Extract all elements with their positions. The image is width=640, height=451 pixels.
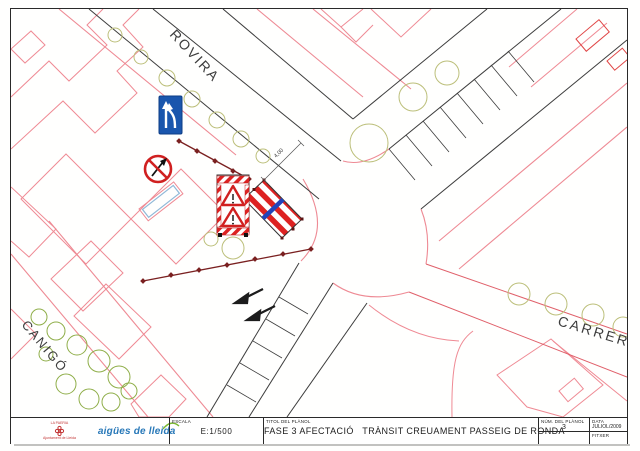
buildings-layer: [11, 9, 627, 417]
aigues-logo: aigües de lleida: [98, 426, 176, 437]
striped-barrier-icon: 4,00: [243, 140, 305, 240]
title-block: LA PAERIA Ajuntament de Lleida aigües de…: [11, 417, 627, 444]
carrer-lines: [409, 264, 627, 377]
logos-cell: LA PAERIA Ajuntament de Lleida aigües de…: [11, 418, 169, 444]
lane-merge-sign-icon: [159, 96, 182, 134]
titol-value: FASE 3 AFECTACIÓ TRÀNSIT CREUAMENT PASSE…: [264, 426, 538, 436]
paeria-logo: LA PAERIA Ajuntament de Lleida: [43, 422, 76, 441]
warning-triangles-panel-icon: [217, 175, 249, 237]
fitxer-subcell: FITXER: [590, 431, 627, 444]
dimension-label: 4,00: [273, 148, 285, 160]
num-value: 3: [539, 424, 589, 431]
street-label-carrer: CARRER: [556, 313, 627, 350]
data-value: JULIOL/2009: [592, 424, 621, 430]
traffic-direction-arrows-icon: [235, 289, 275, 320]
escala-label: ESCALA: [172, 419, 191, 424]
sheet-shadow: [14, 444, 630, 446]
curbs-layer: [11, 9, 627, 417]
trees-layer: [108, 28, 627, 337]
escala-cell: ESCALA E:1/500: [169, 418, 263, 444]
num-empty-subcell: [539, 431, 589, 444]
street-labels: ROVIRA CANIGÓ CARRER: [19, 26, 627, 375]
fitxer-label: FITXER: [592, 433, 609, 438]
num-planol-cell: NÚM. DEL PLÀNOL 3: [538, 418, 589, 444]
drawing-sheet: 4,00: [0, 0, 640, 451]
map-canvas: 4,00: [11, 9, 627, 417]
sheet-frame: 4,00: [10, 8, 628, 444]
titol-label: TITOL DEL PLÀNOL: [266, 419, 311, 424]
escala-value: E:1/500: [170, 427, 263, 436]
no-entry-sign-icon: [145, 156, 171, 182]
work-zone-outline: [139, 182, 183, 221]
titol-cell: TITOL DEL PLÀNOL FASE 3 AFECTACIÓ TRÀNSI…: [263, 418, 538, 444]
paeria-bottom-label: Ajuntament de Lleida: [43, 437, 76, 441]
data-cell: DATA JULIOL/2009 FITXER: [589, 418, 627, 444]
